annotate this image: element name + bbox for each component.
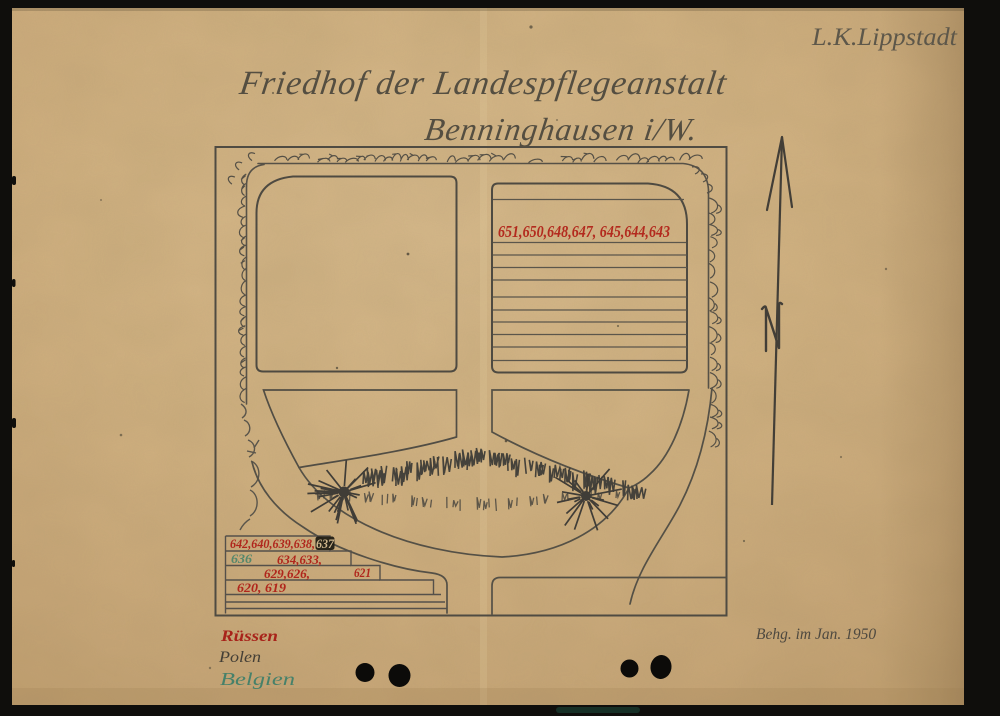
svg-text:Rüssen: Rüssen xyxy=(220,628,278,645)
svg-text:642,640,639,638,: 642,640,639,638, xyxy=(230,536,315,551)
svg-text:651,650,648,647, 645,644,643: 651,650,648,647, 645,644,643 xyxy=(498,222,670,241)
svg-text:637: 637 xyxy=(316,537,335,551)
svg-text:636: 636 xyxy=(231,551,253,566)
svg-text:Behg. im Jan. 1950: Behg. im Jan. 1950 xyxy=(756,626,876,643)
svg-text:634,633,: 634,633, xyxy=(277,552,322,567)
svg-text:Belgien: Belgien xyxy=(220,669,295,689)
svg-text:Benninghausen i/W.: Benninghausen i/W. xyxy=(423,111,701,147)
svg-text:L.K.Lippstadt: L.K.Lippstadt xyxy=(811,24,958,51)
svg-text:621: 621 xyxy=(354,565,371,580)
svg-text:620, 619: 620, 619 xyxy=(237,580,287,595)
svg-text:629,626,: 629,626, xyxy=(264,566,310,581)
svg-text:Friedhof der Landespflegeansta: Friedhof der Landespflegeanstalt xyxy=(236,65,730,102)
svg-text:Polen: Polen xyxy=(218,649,261,666)
